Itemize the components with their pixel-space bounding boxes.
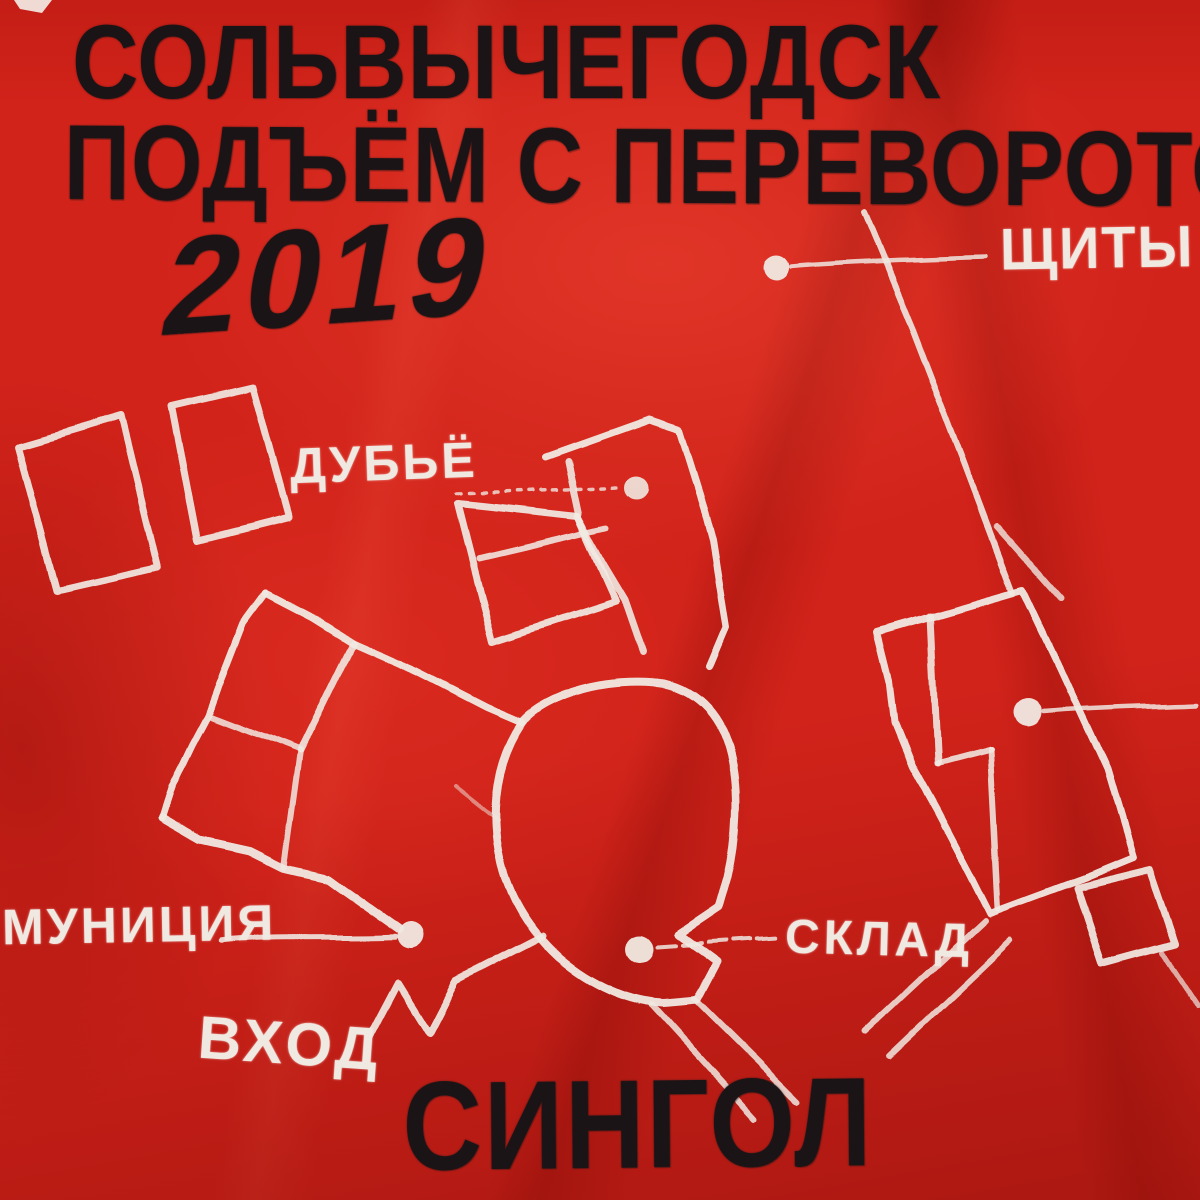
map-west-spoke [455, 786, 498, 820]
map-left-complex-divider-c [284, 751, 300, 867]
map-left-complex-divider-a [300, 643, 353, 751]
title-year: 2019 [153, 196, 505, 359]
fabric-corner-gap [14, 0, 52, 13]
map-road-schity [864, 212, 1013, 592]
label-entrance: ВХОД [196, 1008, 384, 1081]
municia-marker-dot [398, 923, 424, 949]
map-entrance-road [368, 936, 543, 1040]
map-left-complex-left-wall [162, 593, 265, 818]
label-dubyo: ДУБЬЁ [289, 435, 478, 492]
dubyo-leader-line [457, 487, 618, 493]
map-annex-rect [1077, 870, 1175, 963]
sklad-marker-dot [626, 934, 654, 962]
map-right-complex-outline [878, 590, 1133, 913]
right-marker-dot [1013, 698, 1041, 726]
map-right-complex-divider-c [990, 750, 998, 908]
map-house-two-rooms [458, 503, 616, 641]
title-line-1: СОЛЬВЫЧЕГОДСК [72, 10, 941, 115]
map-left-complex-divider-b [212, 717, 300, 751]
map-central-circle [495, 682, 736, 1003]
schity-marker-dot [762, 255, 788, 281]
map-building-rect-1 [18, 416, 158, 591]
map-road-schity-link [997, 527, 1062, 600]
label-ammunition: МУНИЦИЯ [2, 898, 277, 953]
sklad-leader-line [658, 938, 778, 946]
map-right-complex-divider-b [937, 750, 990, 764]
dubyo-marker-dot [625, 475, 649, 499]
title-release: СИНГОЛ [402, 1059, 874, 1190]
painted-banner: ЩИТЫ ДУБЬЁ МУНИЦИЯ СКЛАД ВХОД СОЛЬВЫЧЕГО… [0, 0, 1200, 1200]
map-right-complex-divider-a [930, 616, 937, 764]
map-annex-link [1162, 952, 1197, 1005]
map-building-rect-2 [172, 387, 289, 541]
right-leader-line [1043, 704, 1196, 711]
label-warehouse: СКЛАД [784, 914, 973, 967]
